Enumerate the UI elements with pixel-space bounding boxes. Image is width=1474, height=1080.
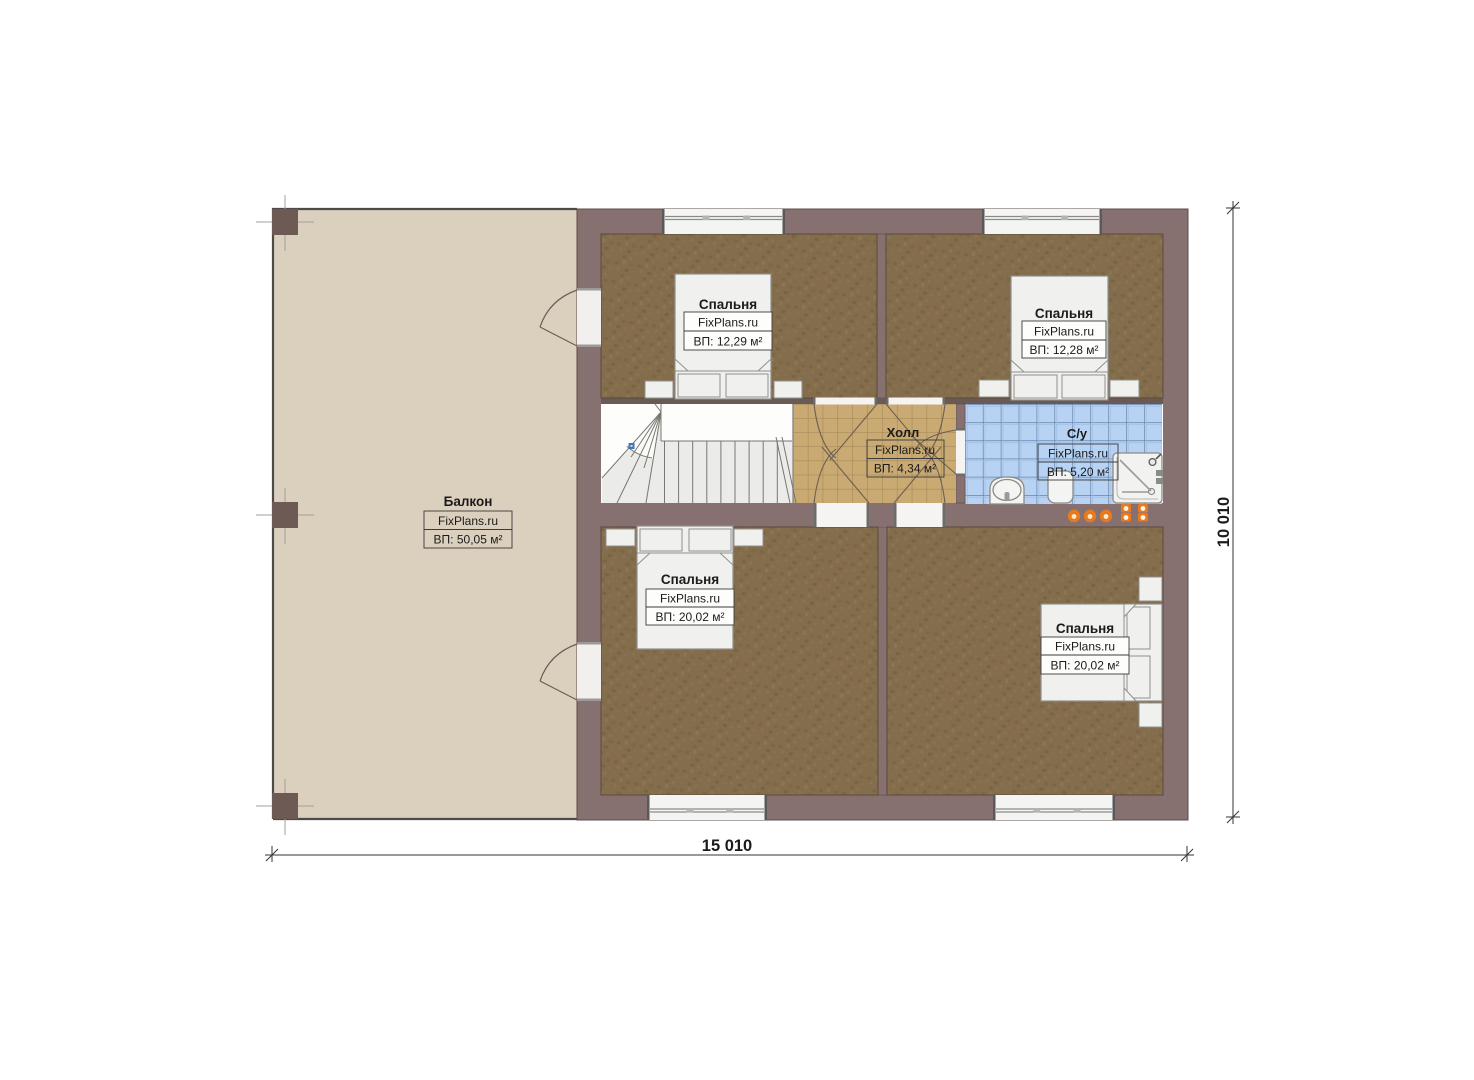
svg-text:Спальня: Спальня xyxy=(699,297,757,312)
svg-text:FixPlans.ru: FixPlans.ru xyxy=(660,592,720,606)
svg-text:ВП: 4,34 м²: ВП: 4,34 м² xyxy=(874,462,936,476)
svg-text:Спальня: Спальня xyxy=(1056,621,1114,636)
svg-text:ВП: 12,29 м²: ВП: 12,29 м² xyxy=(694,335,763,349)
svg-text:FixPlans.ru: FixPlans.ru xyxy=(875,443,935,457)
svg-text:10 010: 10 010 xyxy=(1215,497,1233,547)
svg-text:FixPlans.ru: FixPlans.ru xyxy=(1034,325,1094,339)
svg-text:ВП: 12,28 м²: ВП: 12,28 м² xyxy=(1030,343,1099,357)
svg-text:FixPlans.ru: FixPlans.ru xyxy=(438,514,498,528)
svg-text:Холл: Холл xyxy=(887,425,920,440)
svg-text:ВП: 5,20 м²: ВП: 5,20 м² xyxy=(1047,465,1109,479)
svg-text:FixPlans.ru: FixPlans.ru xyxy=(1048,447,1108,461)
svg-text:Балкон: Балкон xyxy=(444,494,493,509)
svg-text:ВП: 50,05 м²: ВП: 50,05 м² xyxy=(434,533,503,547)
svg-text:FixPlans.ru: FixPlans.ru xyxy=(1055,640,1115,654)
svg-text:15 010: 15 010 xyxy=(702,837,752,855)
svg-text:FixPlans.ru: FixPlans.ru xyxy=(698,316,758,330)
svg-text:ВП: 20,02 м²: ВП: 20,02 м² xyxy=(656,610,725,624)
svg-text:Спальня: Спальня xyxy=(1035,306,1093,321)
svg-text:С/у: С/у xyxy=(1067,426,1088,441)
svg-text:Спальня: Спальня xyxy=(661,572,719,587)
svg-text:ВП: 20,02 м²: ВП: 20,02 м² xyxy=(1051,659,1120,673)
